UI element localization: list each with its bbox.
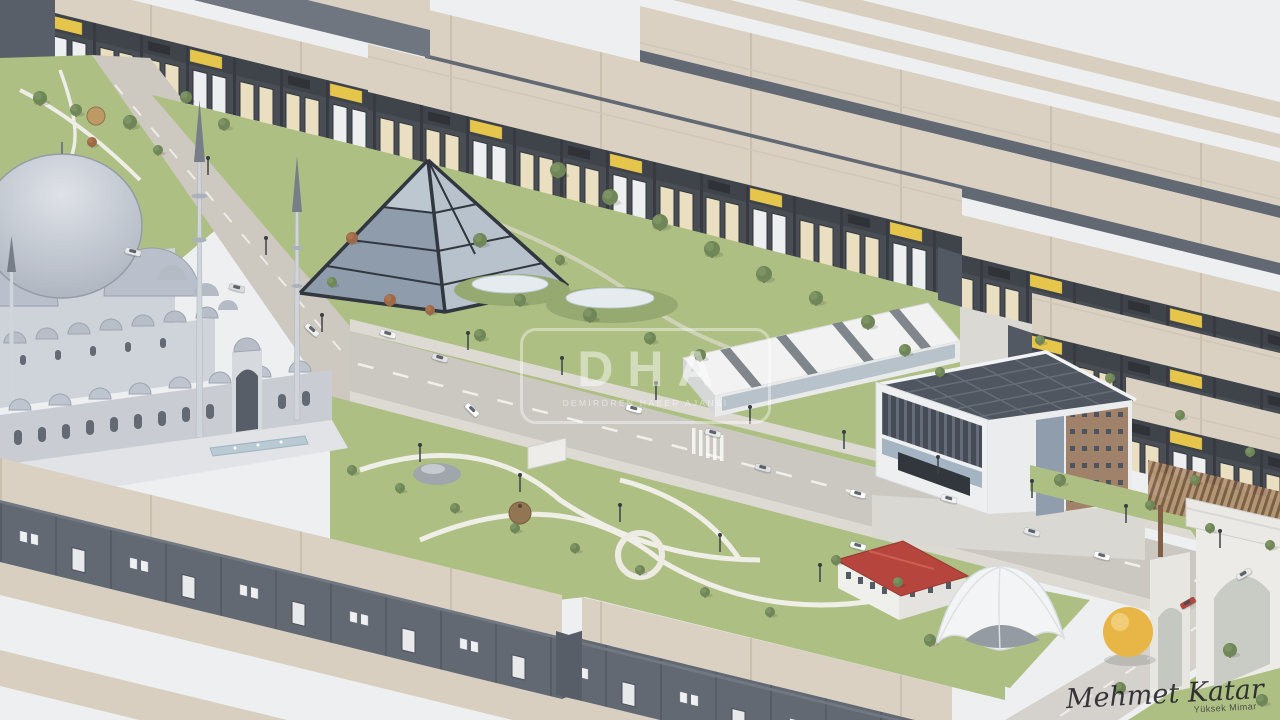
office-building xyxy=(872,352,1145,560)
site-render xyxy=(0,0,1280,720)
render-canvas: DHA DEMİRÖREN HABER AJANSI Mehmet Katar … xyxy=(0,0,1280,720)
gazebo xyxy=(87,107,105,125)
blue-panel xyxy=(1036,416,1064,516)
gable-end xyxy=(556,631,582,701)
yellow-sphere xyxy=(1103,607,1153,657)
